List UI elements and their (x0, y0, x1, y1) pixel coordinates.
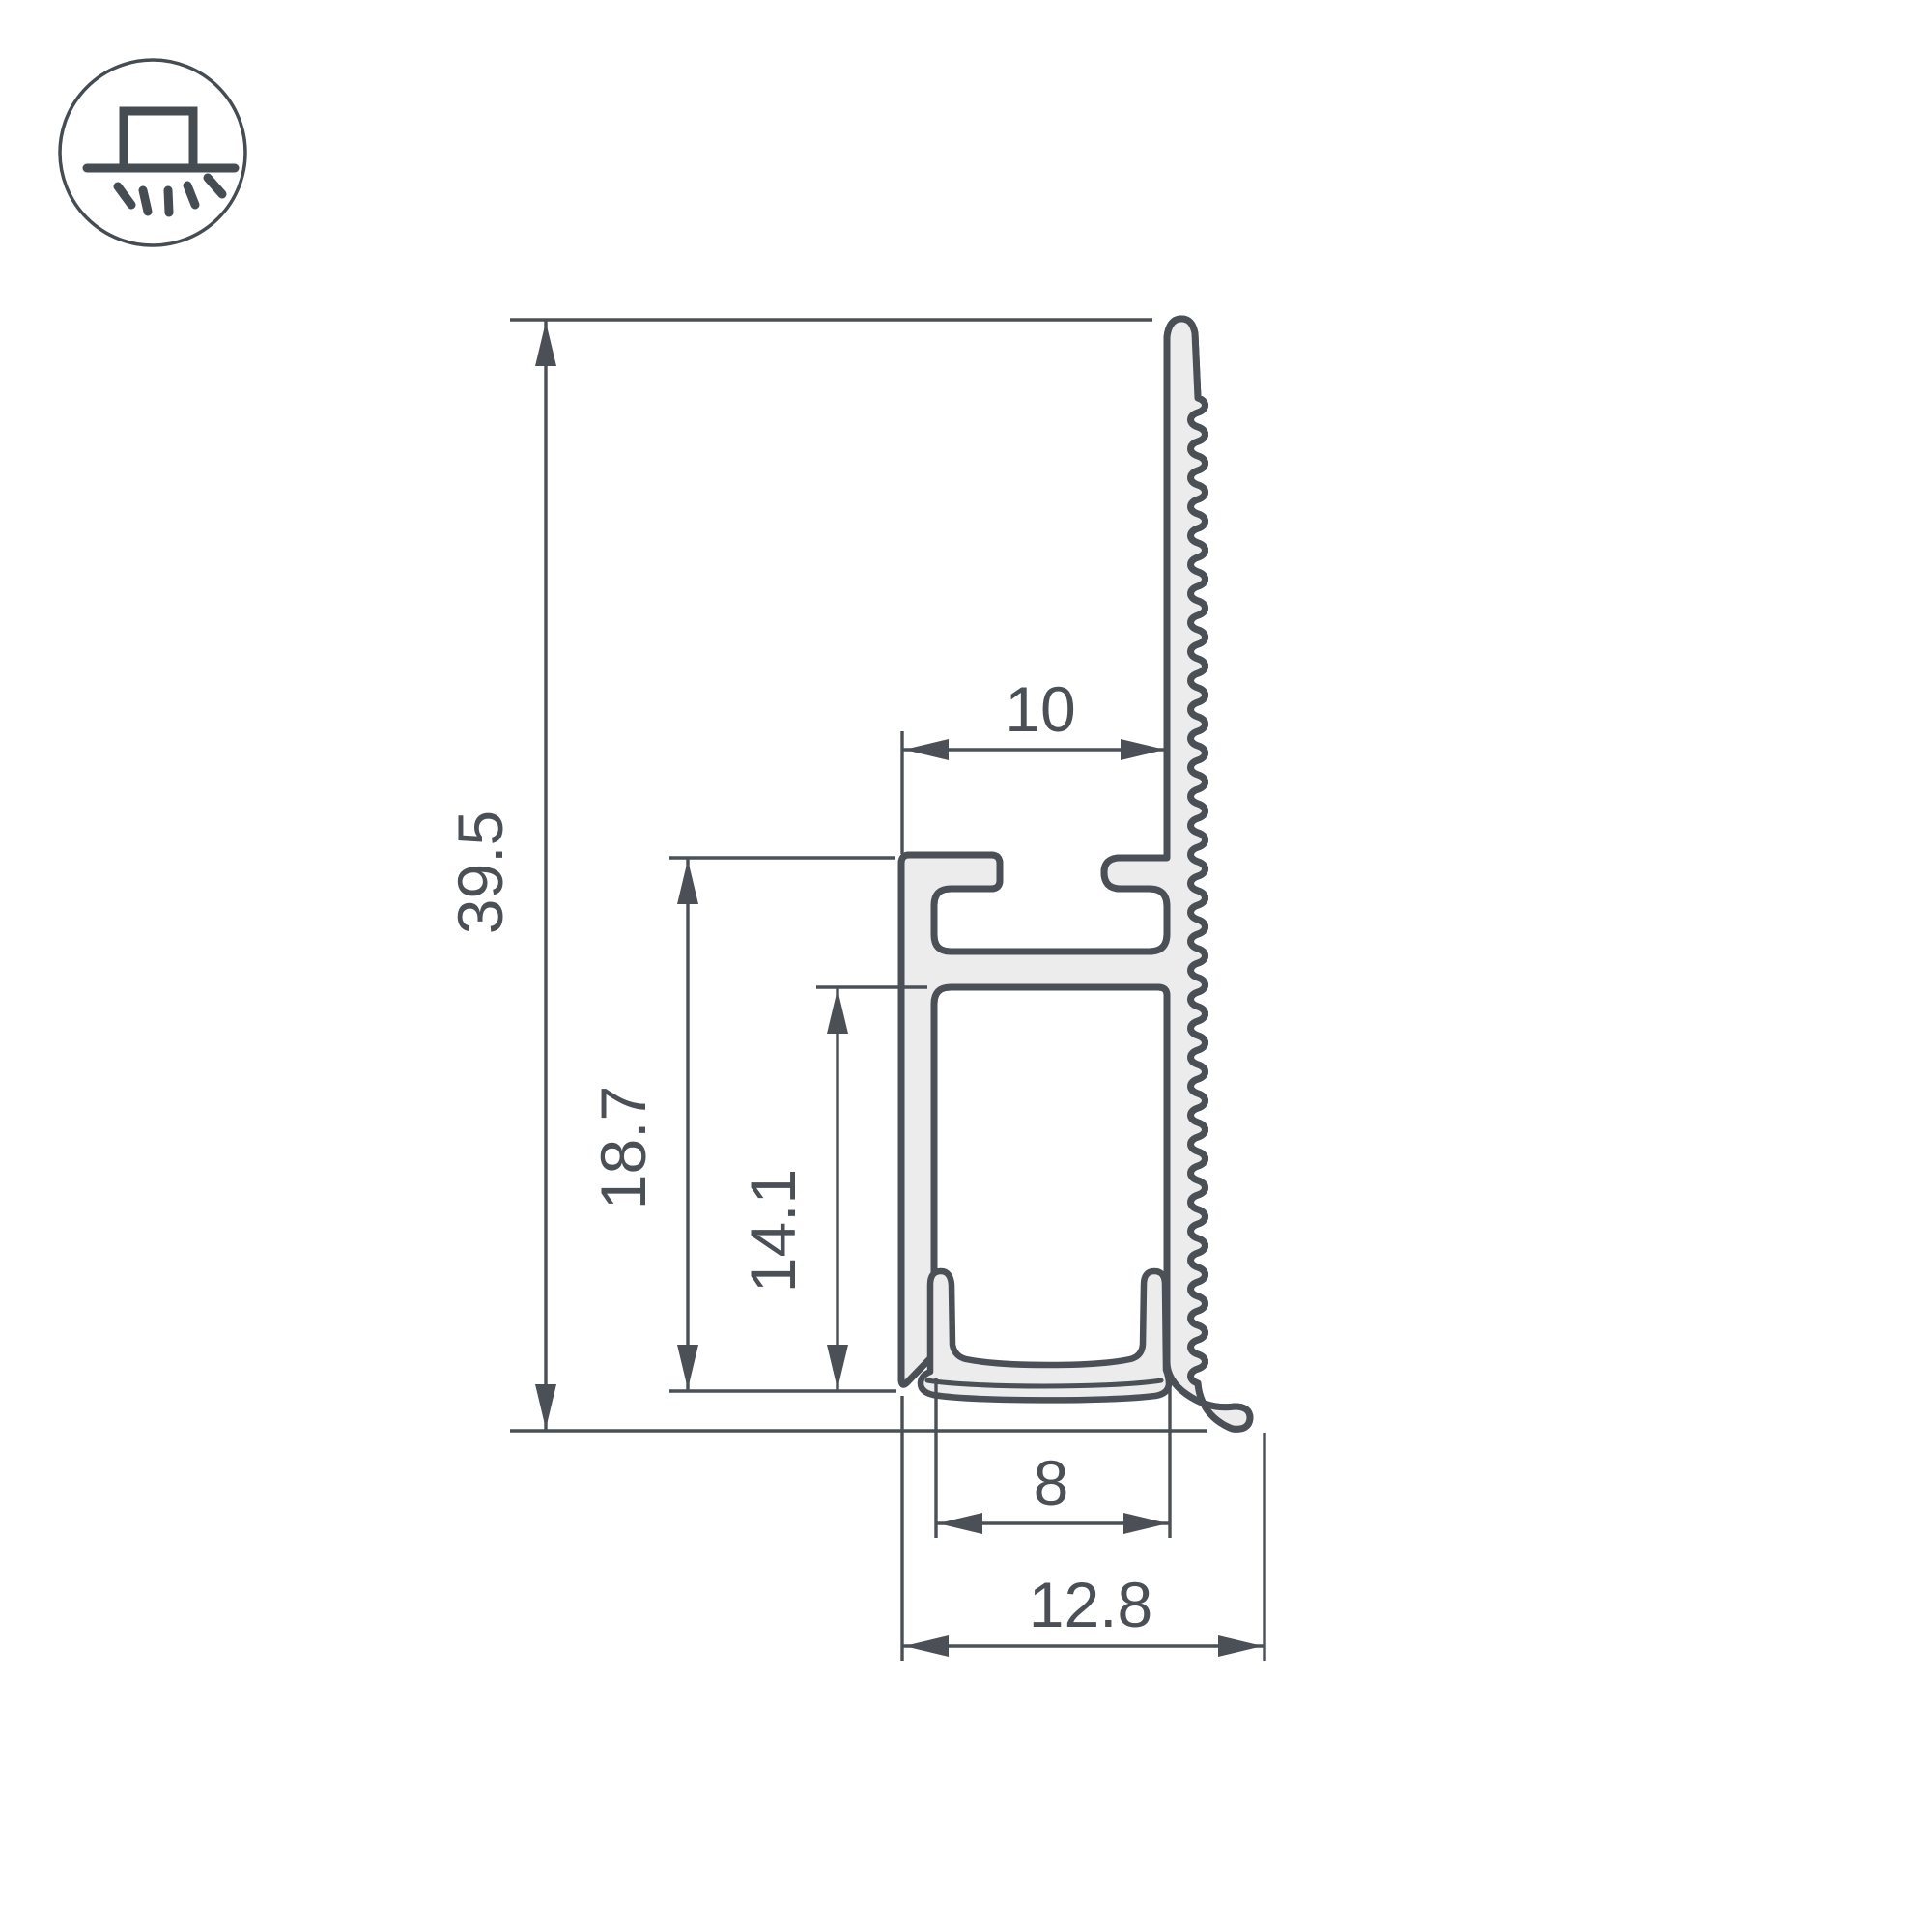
icon-light-rays (118, 178, 222, 213)
dimension-label: 14.1 (737, 1169, 809, 1293)
icon-circle (60, 60, 245, 245)
arrowhead-up (677, 860, 698, 904)
arrowhead-down (535, 1384, 556, 1429)
dimension-overall-width: 12.8 (902, 1396, 1264, 1661)
arrowhead-left (938, 1513, 982, 1534)
arrowhead-right (1121, 739, 1165, 760)
arrowhead-right (1218, 1635, 1263, 1657)
arrowhead-left (904, 1635, 949, 1657)
arrowhead-down (827, 1345, 848, 1389)
arrowhead-up (827, 989, 848, 1034)
profile-cross-section (901, 319, 1250, 1429)
diffuser-screen (921, 1271, 1169, 1400)
dimension-label: 18.7 (587, 1086, 659, 1209)
arrowhead-up (535, 322, 556, 366)
dimension-label: 8 (1034, 1447, 1069, 1519)
dimension-top-slot-width: 10 (902, 673, 1167, 854)
dimension-label: 39.5 (444, 810, 516, 934)
technical-drawing-canvas: 39.5 18.7 14.1 10 8 (0, 0, 1932, 1932)
dimension-label: 12.8 (1029, 1569, 1152, 1640)
arrowhead-down (677, 1345, 698, 1389)
extrusion-hatching (901, 319, 1250, 1429)
recessed-downlight-icon (60, 60, 245, 245)
arrowhead-right (1123, 1513, 1168, 1534)
icon-lamp-square (124, 111, 193, 166)
dimension-label: 10 (1005, 673, 1075, 745)
dimension-flange-height: 18.7 (587, 858, 896, 1391)
arrowhead-left (904, 739, 949, 760)
dimension-overall-height: 39.5 (444, 320, 1207, 1431)
